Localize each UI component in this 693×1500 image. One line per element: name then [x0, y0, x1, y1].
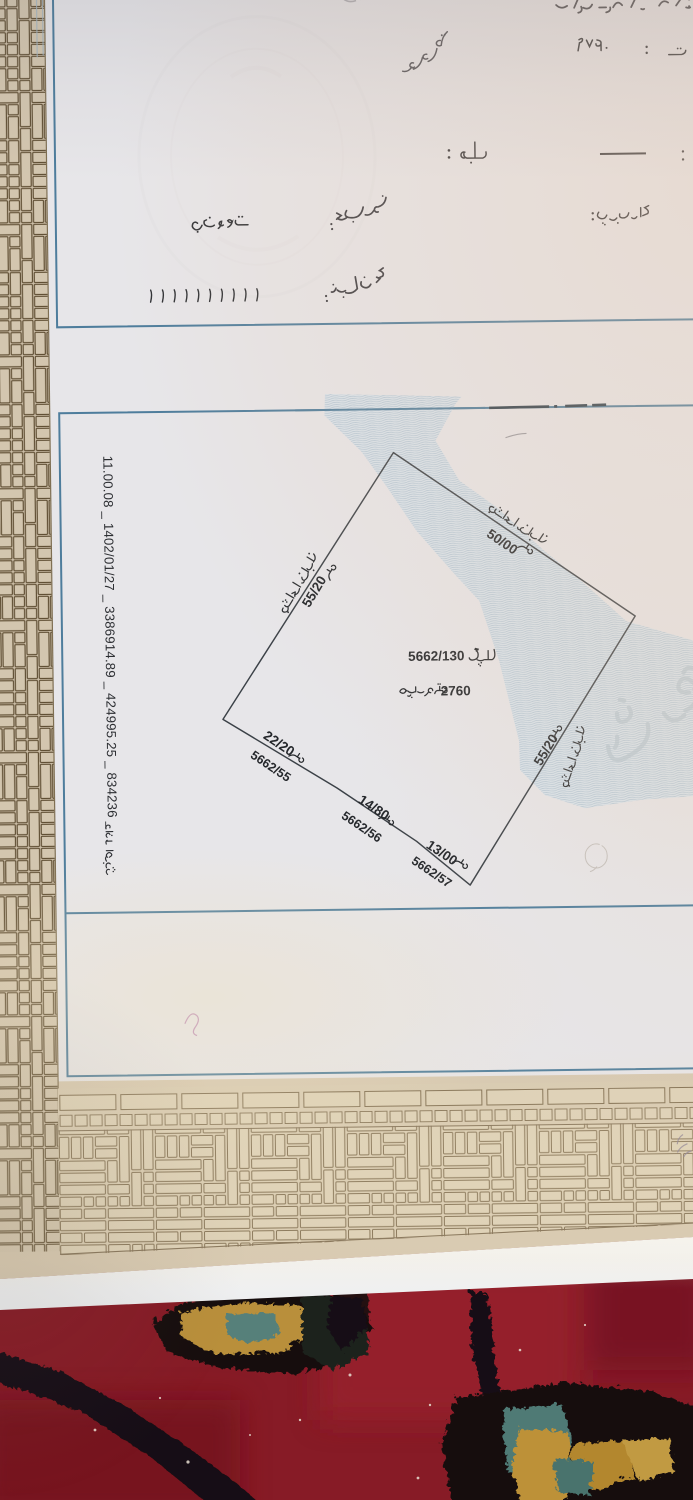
svg-text:2760: 2760 [441, 683, 471, 698]
svg-text:55/20: 55/20 [299, 573, 329, 610]
svg-text:11.00.08 _ 1402/01/27 _ 338691: 11.00.08 _ 1402/01/27 _ 3386914.89 _ 424… [100, 456, 120, 830]
svg-text:5662/130: 5662/130 [408, 648, 464, 664]
